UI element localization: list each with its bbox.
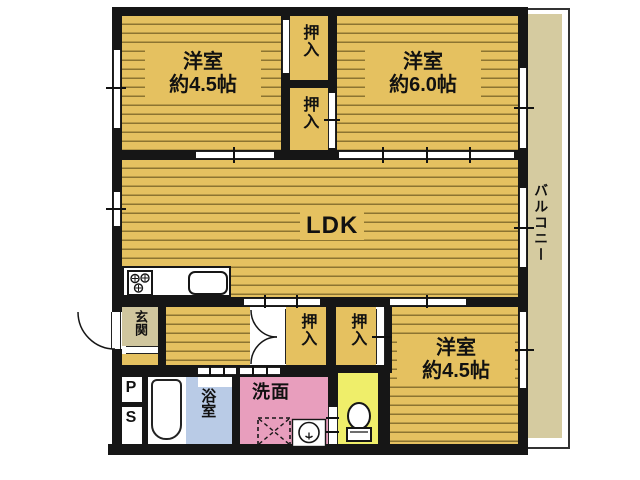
tick [264,295,266,308]
window-bedroom-nw [113,50,121,128]
bedroom-nw-name: 洋室 [148,51,258,74]
sliding-door-hall-ldk [244,298,320,306]
bedroom-ne-name: 洋室 [368,51,478,74]
tick [106,208,126,210]
bedroom-se-name: 洋室 [400,337,512,360]
door-bathroom [198,367,236,375]
wall-ps-right [142,373,148,444]
washing-machine-icon [257,417,291,446]
closet-3-door [277,309,286,364]
bedroom-nw-label: 洋室 約4.5帖 [145,50,261,98]
bedroom-ne-size: 約6.0帖 [368,74,478,97]
tick [514,107,534,109]
lavatory-icon [292,419,326,447]
entrance-door-swing-icon [78,312,116,350]
wall-top [112,7,528,16]
stove-icon [127,270,153,296]
washroom-label: 洗面 [252,382,290,403]
closet-3-label: 押入 [297,313,315,363]
kitchen-sink-icon [188,271,228,295]
wall-left-lower [112,349,122,449]
tick [296,295,298,308]
tick [326,431,339,433]
pipe-space-label-s: S [120,409,142,427]
genkan-pad [122,354,158,365]
bathroom-label: 浴室 [199,388,216,442]
sliding-door-bedroom-se [390,298,466,306]
wall-toilet-right [378,368,390,445]
door-washroom-toilet [328,407,338,444]
closet-2-label: 押入 [299,96,317,146]
bathtub-icon [151,379,182,440]
tick [426,147,428,163]
tick [382,147,384,163]
tick [266,366,268,376]
wall-bath-washroom [232,373,240,444]
tick [233,147,235,163]
bedroom-nw-size: 約4.5帖 [148,74,258,97]
genkan-step [126,346,158,354]
pipe-space-label-p: P [120,379,142,397]
tick [326,417,339,419]
wall-closet-mid [281,80,337,88]
closet-4-label: 押入 [347,313,365,363]
wall-washroom-toilet [328,373,338,407]
tick [469,147,471,163]
tick [252,366,254,376]
pipe-space-divider [120,402,142,407]
bedroom-se-label: 洋室 約4.5帖 [397,336,515,384]
wall-closet4-right [384,307,392,373]
bedroom-se-size: 約4.5帖 [400,360,512,383]
floor-plan: 洋室 約4.5帖 洋室 約6.0帖 洋室 約4.5帖 LDK 押入 押入 押入 … [0,0,640,480]
tick [324,119,340,121]
sliding-door-bedroom-nw-ldk [196,151,274,159]
door-washroom [240,367,280,375]
genkan-label: 玄関 [132,310,147,346]
tick [514,349,534,351]
tick [426,295,428,308]
tick [514,227,534,229]
ldk-label: LDK [300,212,364,240]
tick [223,366,225,376]
bedroom-ne-label: 洋室 約6.0帖 [365,50,481,98]
tick [106,87,126,89]
tick [372,336,392,338]
wall-closet34-mid [326,307,336,373]
tick [209,366,211,376]
wall-genkan-right [158,307,166,368]
hallway-floor [166,307,250,365]
closet-1-label: 押入 [299,24,317,74]
balcony-label: バルコニー [533,183,549,293]
closet-double-door-icon [250,309,278,365]
closet-1-door [282,20,290,73]
toilet-icon [344,402,374,444]
